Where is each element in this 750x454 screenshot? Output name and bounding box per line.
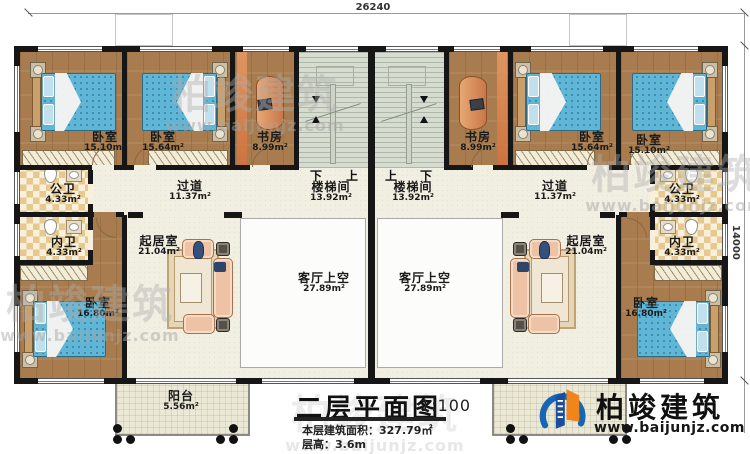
door-opening	[88, 184, 93, 204]
window	[390, 378, 480, 384]
column-dot	[506, 435, 515, 444]
bed-headboard	[517, 77, 526, 127]
room-label-public-bath-l: 公卫4.33m²	[45, 183, 81, 206]
person-figure	[193, 241, 204, 259]
door-opening	[627, 212, 649, 217]
pillow	[35, 331, 46, 352]
wall-segment	[616, 46, 621, 170]
drawing-scale: 1:100	[420, 396, 471, 415]
roof-outline	[569, 14, 627, 46]
coffee-table	[180, 273, 202, 303]
side-table	[216, 242, 230, 256]
armchair	[183, 314, 215, 334]
window	[634, 46, 698, 52]
room-area: 8.99m²	[252, 144, 288, 154]
computer-monitor	[469, 98, 484, 111]
window	[38, 46, 102, 52]
door-opening	[94, 212, 116, 217]
room-label-stair-r: 楼梯间13.92m²	[392, 181, 434, 204]
room-area: 16.80m²	[77, 310, 119, 320]
side-table	[216, 318, 230, 332]
room-area: 16.80m²	[625, 310, 667, 320]
stair-direction-arrow	[312, 116, 320, 123]
right-dimension-label: 14000	[730, 222, 741, 263]
window	[38, 378, 104, 384]
wall-segment	[600, 212, 615, 218]
room-area: 11.37m²	[169, 193, 211, 203]
balcony-door	[136, 378, 236, 384]
room-area: 15.10m²	[84, 144, 126, 154]
room-label-bedroom-r1: 卧室15.64m²	[571, 131, 613, 154]
column-dot	[216, 435, 225, 444]
room-area: 13.92m²	[392, 194, 434, 204]
bed-headboard	[24, 305, 33, 353]
window	[14, 224, 20, 256]
laptop	[214, 262, 226, 272]
room-label-corridor-l: 过道11.37m²	[169, 180, 211, 203]
person-figure	[539, 241, 550, 259]
pillow	[43, 104, 54, 126]
sink	[66, 168, 82, 182]
window	[640, 378, 704, 384]
study-cabinet	[497, 52, 507, 165]
pillow	[43, 76, 54, 98]
room-area: 15.64m²	[571, 144, 613, 154]
window	[243, 46, 289, 52]
wall-segment	[444, 46, 449, 170]
room-label-private-bath-r: 内卫4.33m²	[664, 236, 700, 259]
computer-monitor	[257, 98, 272, 111]
stair-rail	[330, 84, 336, 164]
window	[531, 46, 603, 52]
coffee-table	[541, 273, 563, 303]
side-table	[513, 242, 527, 256]
window	[306, 46, 358, 52]
room-area: 27.89m²	[399, 285, 451, 295]
window	[140, 46, 212, 52]
wall-segment	[652, 260, 722, 265]
room-label-void-r: 客厅上空27.89m²	[399, 272, 451, 295]
pillow	[528, 104, 539, 126]
right-dimension-line	[744, 13, 745, 433]
room-label-study-r: 书房8.99m²	[460, 131, 496, 154]
room-area: 4.33m²	[664, 196, 700, 206]
wall-segment	[128, 212, 143, 218]
stair-direction-arrow	[420, 116, 428, 123]
title-underline	[294, 417, 446, 421]
window	[262, 378, 354, 384]
bed-headboard	[710, 305, 719, 353]
window	[722, 172, 728, 204]
door-opening	[88, 230, 93, 250]
room-label-balcony: 阳台5.56m²	[163, 390, 199, 413]
column-dot	[113, 435, 122, 444]
wall-segment	[20, 260, 90, 265]
wall-segment	[230, 46, 235, 170]
room-label-private-bath-l: 内卫4.33m²	[46, 236, 82, 259]
top-dimension-label: 26240	[353, 2, 394, 13]
door-opening	[650, 184, 655, 204]
wall-segment	[122, 215, 127, 384]
watermark-url: www.baijunjz.com	[255, 436, 495, 454]
top-dimension-line	[28, 13, 745, 14]
pillow	[204, 76, 215, 98]
sink	[660, 220, 676, 234]
company-logo-icon	[536, 382, 590, 436]
room-label-bedroom-br: 卧室16.80m²	[625, 297, 667, 320]
window	[722, 224, 728, 256]
room-label-public-bath-r: 公卫4.33m²	[664, 183, 700, 206]
wardrobe	[20, 265, 88, 281]
room-label-bedroom-l1: 卧室15.10m²	[84, 131, 126, 154]
room-area: 21.04m²	[138, 248, 180, 258]
stair-direction-arrow	[420, 96, 428, 103]
side-table	[513, 318, 527, 332]
room-area: 11.37m²	[534, 193, 576, 203]
column-dot	[609, 435, 618, 444]
column-dot	[622, 435, 631, 444]
window	[722, 306, 728, 352]
pillow	[694, 76, 705, 98]
wall-segment	[224, 212, 242, 218]
room-label-living-r: 起居室21.04m²	[565, 235, 607, 258]
wall-segment	[508, 46, 513, 170]
wall-segment	[616, 215, 621, 384]
room-area: 15.10m²	[628, 147, 670, 157]
bed-headboard	[707, 77, 716, 127]
room-area: 13.92m²	[310, 194, 352, 204]
column-dot	[113, 424, 122, 433]
bed-headboard	[32, 77, 41, 127]
building-logo-icon	[536, 382, 590, 436]
room-label-stair-l: 楼梯间13.92m²	[310, 181, 352, 204]
door-opening	[650, 230, 655, 250]
stair-rail	[406, 84, 412, 164]
window	[722, 66, 728, 132]
pillow	[35, 303, 46, 324]
room-area: 15.64m²	[142, 144, 184, 154]
laptop	[517, 262, 529, 272]
floor-height-text: 层高：3.6m	[302, 436, 366, 452]
bed	[632, 62, 718, 142]
room-area: 4.33m²	[46, 249, 82, 259]
window	[14, 66, 20, 132]
room-label-bedroom-bl: 卧室16.80m²	[77, 297, 119, 320]
sink	[66, 220, 82, 234]
company-website: www.baijunjz.com	[594, 420, 745, 436]
pillow	[694, 104, 705, 126]
stair-direction-arrow	[312, 96, 320, 103]
stair-landing	[316, 66, 354, 86]
wall-segment	[501, 212, 519, 218]
door-opening	[587, 165, 609, 170]
pillow	[528, 76, 539, 98]
room-area: 27.89m²	[298, 285, 350, 295]
room-area: 4.33m²	[45, 196, 81, 206]
column-dot	[126, 435, 135, 444]
window	[14, 306, 20, 352]
wall-segment	[368, 46, 375, 384]
wall-segment	[294, 46, 299, 170]
door-opening	[92, 165, 114, 170]
room-label-living-l: 起居室21.04m²	[138, 235, 180, 258]
pillow	[697, 303, 708, 324]
window	[454, 46, 500, 52]
room-label-study-l: 书房8.99m²	[252, 131, 288, 154]
room-label-void-l: 客厅上空27.89m²	[298, 272, 350, 295]
column-dot	[229, 435, 238, 444]
wardrobe	[654, 265, 722, 281]
column-dot	[506, 424, 515, 433]
column-dot	[229, 424, 238, 433]
pillow	[204, 104, 215, 126]
study-cabinet	[237, 52, 247, 165]
room-label-bedroom-l2: 卧室15.64m²	[142, 131, 184, 154]
roof-outline	[115, 14, 173, 46]
pillow	[697, 331, 708, 352]
room-area: 21.04m²	[565, 248, 607, 258]
stair-landing	[388, 66, 426, 86]
armchair	[528, 314, 560, 334]
room-area: 4.33m²	[664, 249, 700, 259]
column-dot	[519, 435, 528, 444]
floor-plan: 26240 14000	[0, 0, 750, 454]
sink	[660, 168, 676, 182]
door-opening	[629, 165, 651, 170]
room-label-bedroom-r2: 卧室15.10m²	[628, 134, 670, 157]
bed-headboard	[217, 77, 226, 127]
door-opening	[134, 165, 156, 170]
room-area: 5.56m²	[163, 403, 199, 413]
window	[14, 172, 20, 204]
room-area: 8.99m²	[460, 144, 496, 154]
room-label-corridor-r: 过道11.37m²	[534, 180, 576, 203]
window	[386, 46, 438, 52]
